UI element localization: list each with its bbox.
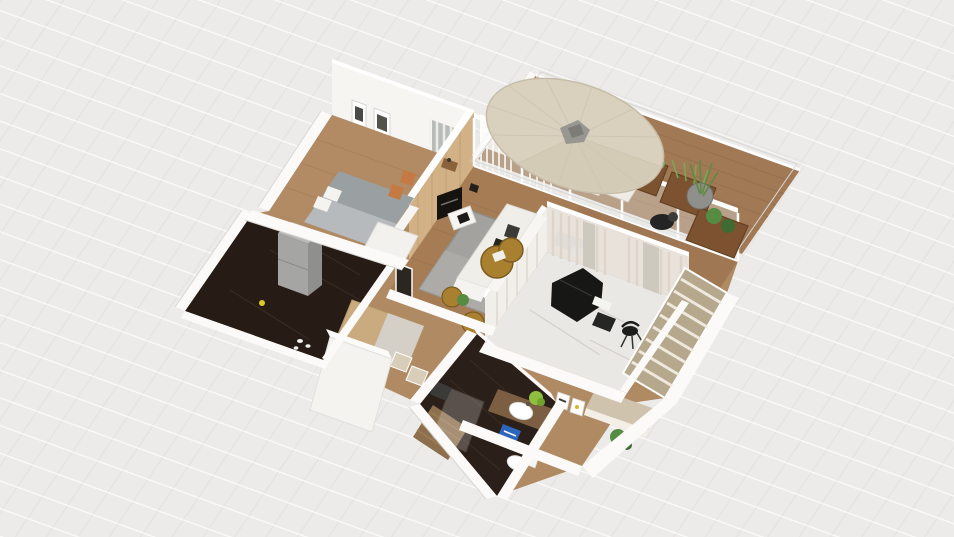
console-decor [447,158,451,162]
dark-floor-object [668,212,678,222]
chair-seat[interactable] [622,326,638,336]
potted-plant [457,294,469,306]
counter-plant-leaf [537,398,545,406]
planter-plant [721,219,735,233]
planter-plant [706,208,722,224]
frame-art-dot [575,405,579,409]
window-opening [643,242,659,294]
faucet [526,402,530,406]
window-opening [583,221,595,270]
floorplan-scene [0,0,954,537]
yellow-object [259,300,265,306]
floorplan-3d-viewport[interactable] [0,0,954,537]
